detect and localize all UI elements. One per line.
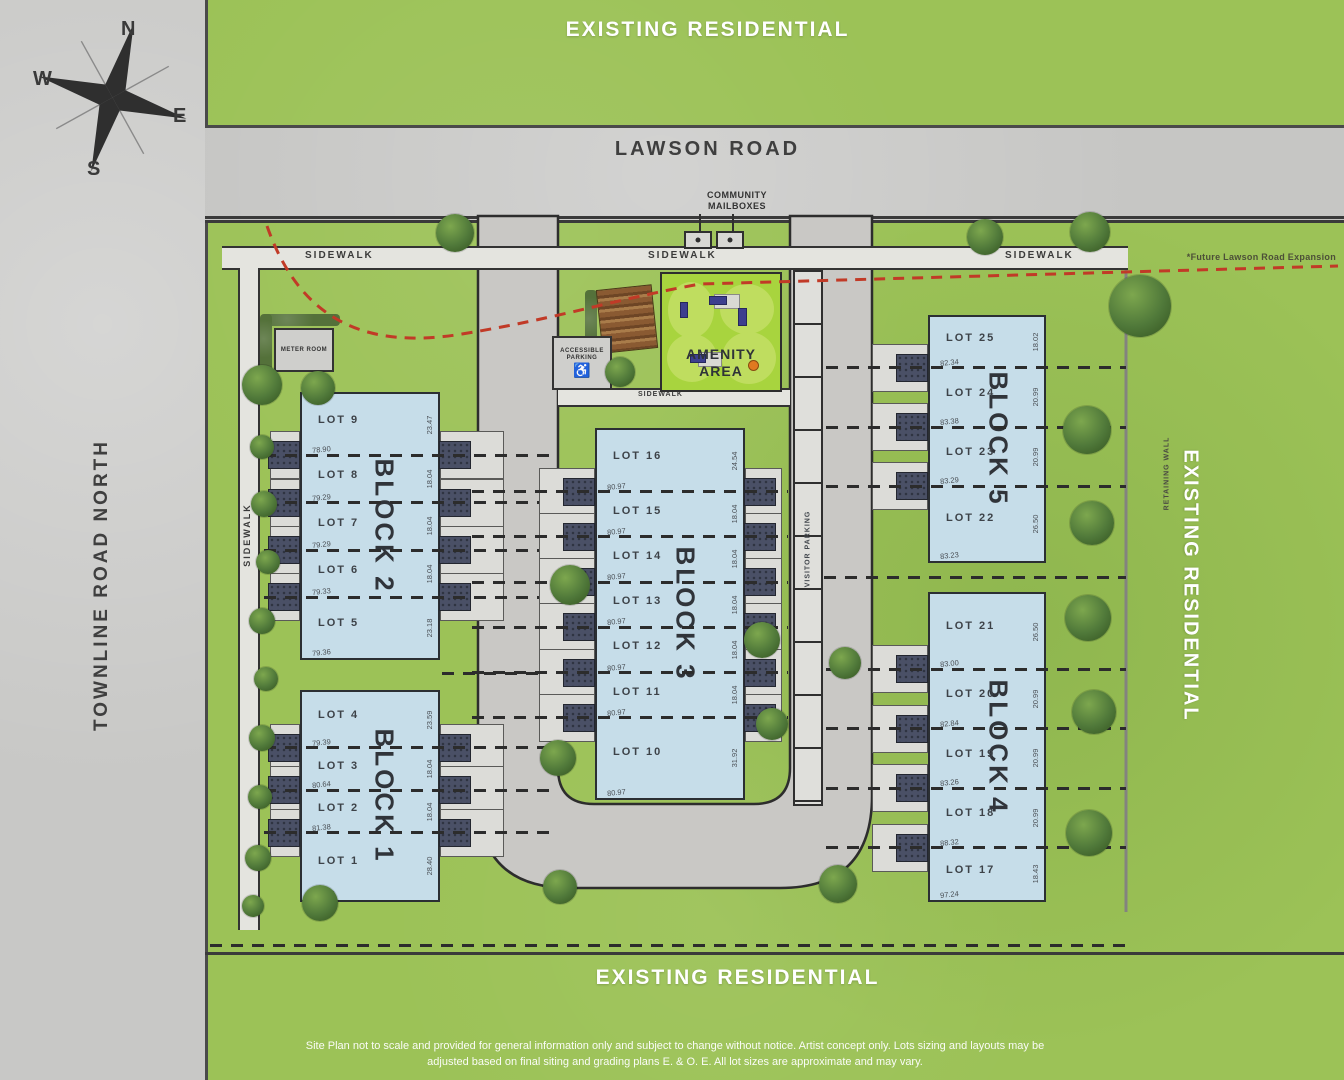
lot-label: LOT 19: [946, 748, 995, 760]
tree-icon: [242, 365, 282, 405]
lot-width-dim: 18.04: [730, 595, 739, 614]
tree-icon: [1070, 212, 1110, 252]
lot-label: LOT 13: [613, 595, 662, 607]
compass-rose: N E S W: [25, 10, 200, 185]
meter-room: METER ROOM: [274, 328, 334, 372]
lot-row: LOT 2183.0026.50: [930, 594, 1044, 669]
lot-label: LOT 14: [613, 550, 662, 562]
tree-icon: [249, 608, 275, 634]
lot-row: LOT 579.3623.18: [302, 597, 438, 658]
existing-residential-right-label: EXISTING RESIDENTIAL: [1179, 449, 1202, 721]
retaining-wall-label: RETAINING WALL: [1163, 437, 1170, 511]
townline-road-label-wrap: TOWNLINE ROAD NORTH: [0, 330, 205, 840]
lot-label: LOT 12: [613, 640, 662, 652]
hedge: [264, 314, 340, 326]
lot-label: LOT 2: [318, 802, 359, 814]
lot-width-dim: 23.59: [425, 710, 434, 729]
lot-frontage-dim: 79.36: [312, 647, 332, 658]
compass-star-icon: [25, 10, 200, 185]
sidewalk-label-amenity: SIDEWALK: [638, 391, 683, 398]
lot-label: LOT 1: [318, 855, 359, 867]
lot-label: LOT 20: [946, 688, 995, 700]
tree-icon: [1109, 275, 1171, 337]
lot-label: LOT 3: [318, 760, 359, 772]
tree-icon: [256, 550, 280, 574]
lot-label: LOT 4: [318, 709, 359, 721]
lawson-road-label: LAWSON ROAD: [205, 138, 1210, 161]
tree-icon: [251, 491, 277, 517]
tree-icon: [1072, 690, 1116, 734]
lot-width-dim: 24.54: [730, 451, 739, 470]
tree-icon: [249, 725, 275, 751]
lot-row: LOT 1580.9718.04: [597, 492, 743, 537]
existing-residential-top-label: EXISTING RESIDENTIAL: [205, 18, 1210, 42]
lot-label: LOT 16: [613, 450, 662, 462]
tree-icon: [436, 214, 474, 252]
lot-width-dim: 18.04: [425, 564, 434, 583]
lot-label: LOT 11: [613, 686, 662, 698]
lot-label: LOT 21: [946, 620, 995, 632]
playground-equipment: [709, 296, 727, 305]
lot-width-dim: 26.50: [1031, 622, 1040, 641]
block-3: BLOCK 3 LOT 1680.9724.54LOT 1580.9718.04…: [595, 428, 745, 800]
block-2: BLOCK 2 LOT 978.9023.47LOT 879.2918.04LO…: [300, 392, 440, 660]
lot-row: LOT 2582.3418.02: [930, 317, 1044, 368]
tree-icon: [756, 708, 788, 740]
lot-width-dim: 26.50: [1031, 514, 1040, 533]
amenity-area-label: AMENITY AREA: [673, 346, 769, 380]
lot-row: LOT 1680.9724.54: [597, 430, 743, 492]
lot-row: LOT 1480.9718.04: [597, 537, 743, 582]
lot-label: LOT 5: [318, 617, 359, 629]
lot-label: LOT 17: [946, 864, 995, 876]
lot-row: LOT 1080.9731.92: [597, 718, 743, 798]
lot-width-dim: 31.92: [730, 749, 739, 768]
lot-width-dim: 20.99: [1031, 690, 1040, 709]
lot-width-dim: 20.99: [1031, 749, 1040, 768]
lot-width-dim: 18.04: [425, 802, 434, 821]
tree-icon: [1066, 810, 1112, 856]
visitor-parking-strip: VISITOR PARKING: [793, 270, 823, 806]
townline-road-label: TOWNLINE ROAD NORTH: [92, 439, 114, 731]
site-north-boundary: [205, 216, 1344, 219]
lot-label: LOT 24: [946, 387, 995, 399]
lot-frontage-dim: 80.97: [607, 787, 627, 798]
lot-label: LOT 10: [613, 746, 662, 758]
disclaimer: Site Plan not to scale and provided for …: [205, 1038, 1145, 1070]
tree-icon: [242, 895, 264, 917]
tree-icon: [248, 785, 272, 809]
tree-icon: [245, 845, 271, 871]
lot-frontage-dim: 97.24: [940, 889, 960, 900]
block-gap-dash-right: [824, 576, 1126, 579]
lot-row: LOT 679.3318.04: [302, 550, 438, 597]
compass-s: S: [87, 158, 100, 181]
sidewalk-label-left: SIDEWALK: [305, 250, 374, 261]
lot-width-dim: 18.04: [730, 641, 739, 660]
lot-width-dim: 23.18: [425, 618, 434, 637]
compass-e: E: [173, 105, 186, 128]
lot-row: LOT 2082.8420.99: [930, 669, 1044, 729]
block-4: BLOCK 4 LOT 2183.0026.50LOT 2082.8420.99…: [928, 592, 1046, 902]
tree-icon: [1063, 406, 1111, 454]
lot-label: LOT 6: [318, 564, 359, 576]
lot-width-dim: 18.04: [425, 470, 434, 489]
lot-width-dim: 23.47: [425, 415, 434, 434]
community-mailboxes-label: COMMUNITY MAILBOXES: [688, 190, 786, 212]
site-south-boundary: [205, 952, 1344, 955]
lot-width-dim: 18.43: [1031, 864, 1040, 883]
mailbox: [684, 231, 712, 249]
lot-label: LOT 15: [613, 505, 662, 517]
lot-row: LOT 2383.2920.99: [930, 427, 1044, 486]
lot-label: LOT 8: [318, 469, 359, 481]
lot-width-dim: 18.02: [1031, 333, 1040, 352]
lot-row: LOT 2283.2326.50: [930, 486, 1044, 561]
lot-width-dim: 18.04: [425, 517, 434, 536]
lot-row: LOT 281.3818.04: [302, 790, 438, 833]
tree-icon: [819, 865, 857, 903]
sidewalk-label-center: SIDEWALK: [648, 250, 717, 261]
tree-icon: [829, 647, 861, 679]
site-plan: SIDEWALK SIDEWALK SIDEWALK SIDEWALK SIDE…: [0, 0, 1344, 1080]
property-dashed-line: [210, 944, 1128, 947]
existing-residential-right-wrap: EXISTING RESIDENTIAL: [1120, 450, 1260, 720]
future-expansion-label: *Future Lawson Road Expansion: [1160, 252, 1336, 262]
tree-icon: [254, 667, 278, 691]
lot-row: LOT 2483.3820.99: [930, 368, 1044, 427]
lot-width-dim: 20.99: [1031, 388, 1040, 407]
lot-row: LOT 380.6418.04: [302, 748, 438, 791]
tree-icon: [540, 740, 576, 776]
lot-width-dim: 20.99: [1031, 809, 1040, 828]
mailbox: [716, 231, 744, 249]
playground-equipment: [738, 308, 747, 326]
lot-width-dim: 18.04: [730, 550, 739, 569]
visitor-parking-label: VISITOR PARKING: [805, 510, 812, 587]
block-1: BLOCK 1 LOT 479.3923.59LOT 380.6418.04LO…: [300, 690, 440, 902]
tree-icon: [301, 371, 335, 405]
tree-icon: [550, 565, 590, 605]
sidewalk-label-right: SIDEWALK: [1005, 250, 1074, 261]
lot-width-dim: 18.04: [730, 505, 739, 524]
lot-frontage-dim: 83.23: [940, 550, 960, 561]
tree-icon: [302, 885, 338, 921]
block-5: BLOCK 5 LOT 2582.3418.02LOT 2483.3820.99…: [928, 315, 1046, 563]
wheelchair-icon: ♿: [573, 362, 590, 379]
sidewalk-label-vertical: SIDEWALK: [242, 503, 252, 567]
lot-label: LOT 22: [946, 512, 995, 524]
lot-label: LOT 7: [318, 517, 359, 529]
tree-icon: [1070, 501, 1114, 545]
disclaimer-line-1: Site Plan not to scale and provided for …: [205, 1038, 1145, 1054]
accessible-parking: ACCESSIBLE PARKING ♿: [552, 336, 612, 390]
lot-width-dim: 18.04: [730, 686, 739, 705]
tree-icon: [967, 219, 1003, 255]
lot-label: LOT 9: [318, 414, 359, 426]
play-pad: [668, 282, 714, 338]
lot-width-dim: 18.04: [425, 760, 434, 779]
lot-width-dim: 20.99: [1031, 447, 1040, 466]
disclaimer-line-2: adjusted based on final siting and gradi…: [205, 1054, 1145, 1070]
compass-n: N: [121, 18, 135, 41]
lot-label: LOT 25: [946, 332, 995, 344]
lot-width-dim: 28.40: [425, 857, 434, 876]
lot-row: LOT 779.2918.04: [302, 503, 438, 550]
lot-row: LOT 1888.3220.99: [930, 788, 1044, 848]
lot-row: LOT 1983.2620.99: [930, 729, 1044, 789]
lot-label: LOT 18: [946, 807, 995, 819]
tree-icon: [1065, 595, 1111, 641]
lot-row: LOT 479.3923.59: [302, 692, 438, 748]
play-pad: [720, 284, 774, 334]
lot-row: LOT 1280.9718.04: [597, 627, 743, 672]
amenity-area: AMENITY AREA: [660, 272, 782, 392]
tree-icon: [543, 870, 577, 904]
playground-equipment: [680, 302, 688, 318]
lot-row: LOT 879.2918.04: [302, 455, 438, 502]
accessible-parking-label: ACCESSIBLE PARKING: [554, 348, 610, 362]
existing-residential-bottom-label: EXISTING RESIDENTIAL: [205, 966, 1270, 990]
lot-label: LOT 23: [946, 446, 995, 458]
tree-icon: [250, 435, 274, 459]
lot-row: LOT 1380.9718.04: [597, 582, 743, 627]
lot-row: LOT 1180.9718.04: [597, 673, 743, 718]
lot-row: LOT 1797.2418.43: [930, 848, 1044, 900]
compass-w: W: [33, 68, 52, 91]
meter-room-label: METER ROOM: [281, 347, 327, 354]
tree-icon: [605, 357, 635, 387]
tree-icon: [744, 622, 780, 658]
